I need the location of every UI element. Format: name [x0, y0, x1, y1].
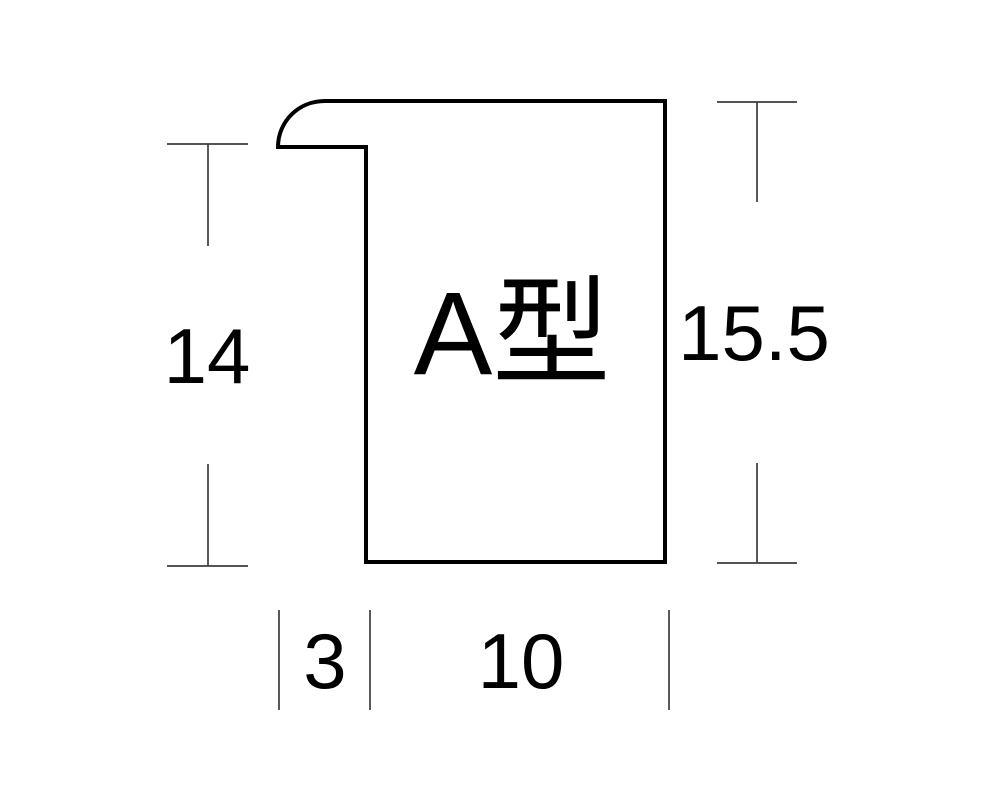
profile-name-label: A型	[414, 275, 611, 393]
overall-height-dimension-label: 15.5	[678, 294, 830, 372]
lip-width-dimension-label: 3	[303, 622, 346, 700]
left-height-dimension-label: 14	[164, 317, 251, 395]
body-width-dimension-label: 10	[478, 622, 565, 700]
moulding-profile-diagram: 14 15.5 A型 3 10	[0, 0, 1000, 800]
